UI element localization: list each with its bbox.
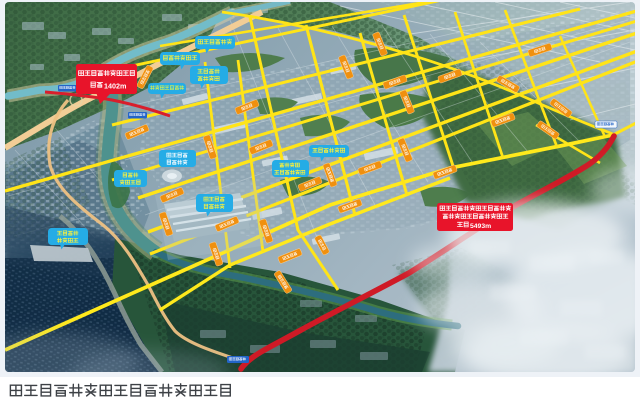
svg-text:5493m: 5493m xyxy=(470,223,491,230)
svg-text:1402m: 1402m xyxy=(104,81,126,90)
